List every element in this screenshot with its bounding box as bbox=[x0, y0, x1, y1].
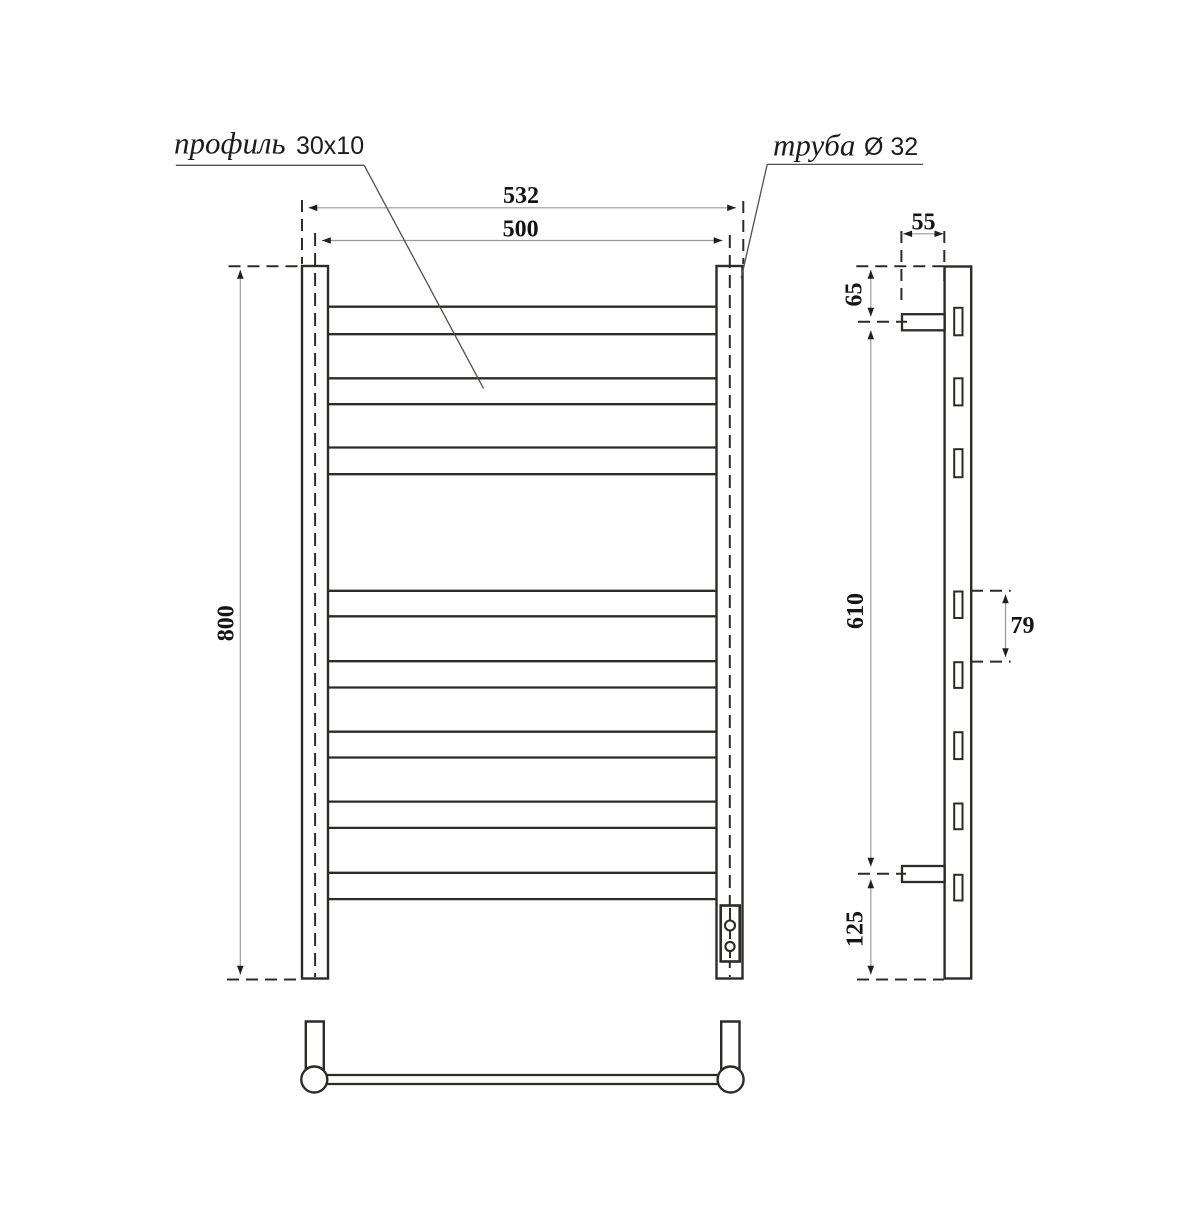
svg-text:125: 125 bbox=[843, 911, 869, 947]
svg-text:500: 500 bbox=[503, 217, 539, 243]
svg-text:65: 65 bbox=[842, 283, 868, 307]
svg-text:800: 800 bbox=[214, 605, 240, 641]
svg-text:610: 610 bbox=[843, 593, 869, 629]
svg-text:Ø 32: Ø 32 bbox=[864, 133, 918, 161]
svg-text:30x10: 30x10 bbox=[296, 132, 364, 160]
svg-text:79: 79 bbox=[1011, 613, 1035, 639]
svg-text:труба: труба bbox=[773, 128, 855, 163]
svg-text:55: 55 bbox=[912, 210, 936, 236]
svg-text:532: 532 bbox=[503, 183, 539, 209]
svg-text:профиль: профиль bbox=[174, 126, 286, 161]
